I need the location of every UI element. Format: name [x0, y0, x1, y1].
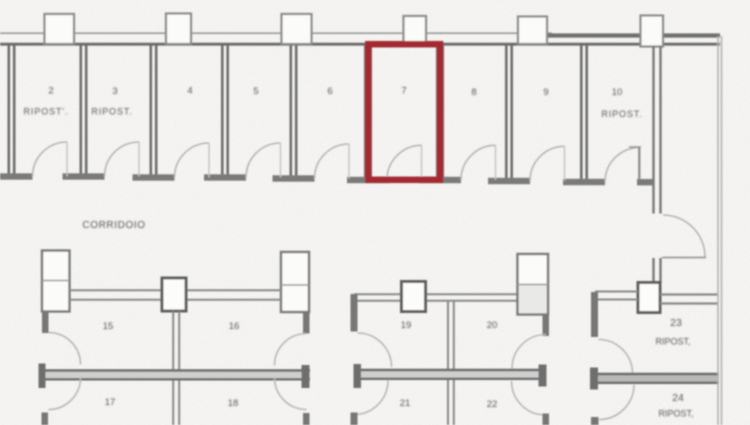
svg-text:17: 17 — [105, 397, 116, 408]
svg-text:20: 20 — [487, 320, 498, 331]
svg-text:21: 21 — [400, 398, 411, 409]
svg-text:15: 15 — [103, 321, 114, 332]
svg-text:RIPOST,: RIPOST, — [658, 409, 693, 419]
svg-text:23: 23 — [670, 317, 682, 329]
svg-text:6: 6 — [327, 86, 332, 97]
svg-text:7: 7 — [401, 86, 406, 97]
svg-text:10: 10 — [612, 87, 623, 98]
svg-text:24: 24 — [672, 392, 684, 404]
svg-text:3: 3 — [112, 86, 117, 97]
svg-text:9: 9 — [543, 87, 548, 98]
svg-text:CORRIDOIO: CORRIDOIO — [82, 220, 145, 231]
svg-text:16: 16 — [229, 321, 240, 332]
svg-text:18: 18 — [228, 398, 239, 409]
svg-text:4: 4 — [187, 86, 192, 97]
svg-text:8: 8 — [471, 87, 476, 98]
svg-text:5: 5 — [253, 86, 258, 97]
svg-text:19: 19 — [401, 320, 412, 331]
svg-text:RIPOST'.: RIPOST'. — [24, 107, 69, 117]
svg-text:2: 2 — [48, 86, 53, 97]
svg-text:22: 22 — [487, 399, 498, 410]
svg-text:RIPOST.: RIPOST. — [601, 109, 642, 119]
svg-text:RIPOST,: RIPOST, — [655, 337, 690, 347]
svg-text:RIPOST.: RIPOST. — [91, 107, 132, 117]
